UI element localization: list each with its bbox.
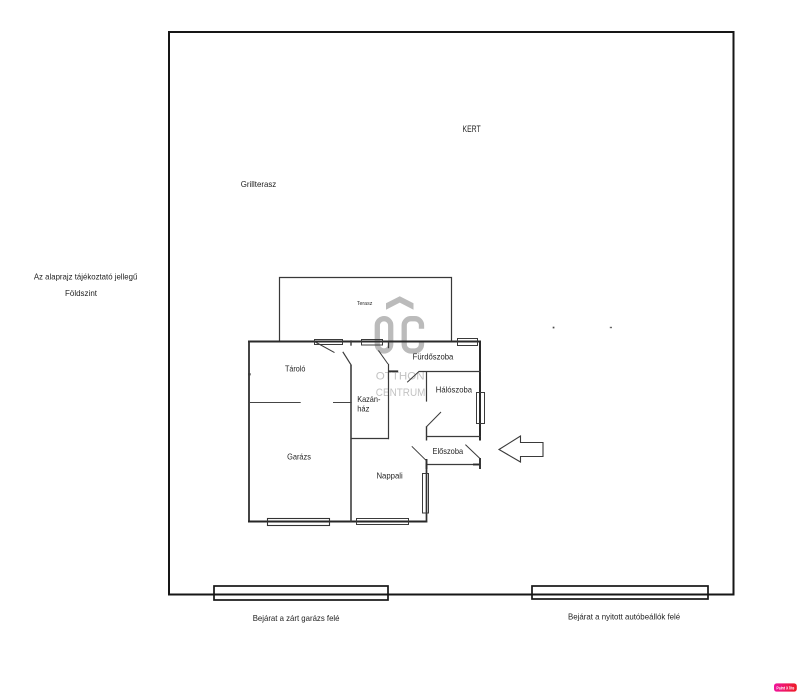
- svg-text:OTTHON: OTTHON: [376, 370, 425, 382]
- svg-text:Bejárat a zárt garázs felé: Bejárat a zárt garázs felé: [253, 613, 340, 623]
- svg-text:ház: ház: [357, 404, 369, 413]
- svg-text:Bejárat a nyitott autóbeállók: Bejárat a nyitott autóbeállók felé: [568, 612, 681, 622]
- svg-text:Földszint: Földszint: [65, 288, 98, 298]
- svg-text:KERT: KERT: [463, 124, 482, 134]
- svg-text:Nappali: Nappali: [376, 472, 402, 481]
- svg-text:Terasz: Terasz: [357, 301, 373, 307]
- svg-text:Kazán-: Kazán-: [357, 395, 380, 404]
- svg-text:Előszoba: Előszoba: [433, 447, 464, 456]
- svg-text:Tároló: Tároló: [285, 365, 306, 374]
- svg-text:CENTRUM: CENTRUM: [376, 387, 426, 399]
- svg-text:Garázs: Garázs: [287, 452, 311, 461]
- svg-text:Grillterasz: Grillterasz: [241, 179, 277, 189]
- svg-text:Hálószoba: Hálószoba: [436, 386, 473, 395]
- svg-text:Paint X lite: Paint X lite: [776, 686, 795, 691]
- svg-text:Az alaprajz tájékoztató jelleg: Az alaprajz tájékoztató jellegű: [34, 271, 138, 281]
- svg-text:Fürdőszoba: Fürdőszoba: [413, 352, 454, 361]
